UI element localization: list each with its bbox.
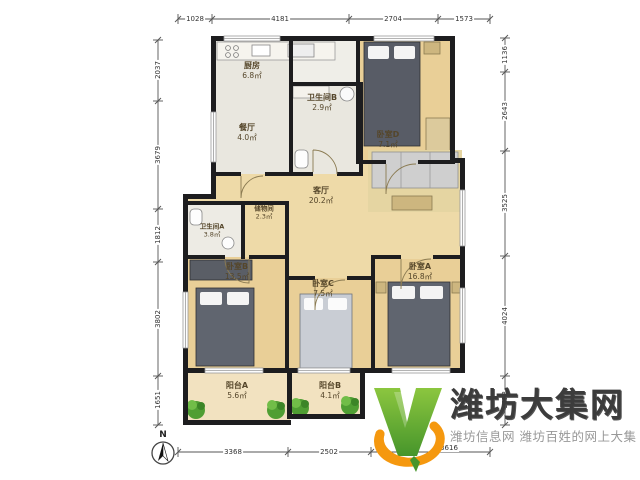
dim-right-3: 3525 [501,193,509,213]
north-compass-icon [152,442,174,464]
dim-top-4: 1573 [454,15,474,23]
room-label-bath-b: 卫生间B 2.9㎡ [307,93,337,113]
room-label-living: 客厅 20.2㎡ [309,186,333,206]
room-label-bath-a: 卫生间A 3.8㎡ [200,223,225,240]
dim-right-1: 1136 [501,45,509,65]
room-label-balcony-a: 阳台A 5.6㎡ [226,381,248,401]
coffee-table [392,196,432,210]
room-label-bedroom-c: 卧室C 7.5㎡ [312,279,334,299]
watermark-text: 潍坊大集网 潍坊信息网 潍坊百姓的网上大集 [450,384,636,445]
sofa [372,152,458,188]
dim-left-1: 2037 [154,60,162,80]
room-label-bedroom-a: 卧室A 16.8㎡ [408,262,432,282]
dim-left-5: 1651 [154,390,162,410]
dim-top-1: 1028 [185,15,205,23]
room-label-bedroom-b: 卧室B 13.5㎡ [225,262,249,282]
dim-top-3: 2704 [383,15,403,23]
watermark-title: 潍坊大集网 [450,384,636,425]
dim-right-2: 2643 [501,101,509,121]
watermark-logo: 潍坊大集网 潍坊信息网 潍坊百姓的网上大集 [364,384,636,472]
washer-icon [340,87,354,101]
brand-v-icon [364,384,448,472]
room-label-bedroom-d: 卧室D 7.1㎡ [377,130,400,150]
kitchen-sink [252,45,270,56]
room-label-dining: 餐厅 4.0㎡ [237,123,256,143]
dim-top-2: 4181 [270,15,290,23]
watermark-subtitle: 潍坊信息网 潍坊百姓的网上大集 [450,426,636,445]
dim-left-4: 3802 [154,309,162,329]
room-label-storage: 储物间 2.3㎡ [254,205,274,222]
bath-b-toilet [295,150,308,168]
room-label-kitchen: 厨房 6.8㎡ [242,61,261,81]
dim-right-4: 4024 [501,306,509,326]
room-label-balcony-b: 阳台B 4.1㎡ [319,381,341,401]
dim-left-3: 1812 [154,225,162,245]
dim-left-2: 3679 [154,145,162,165]
dim-bottom-2: 2502 [319,448,339,456]
dim-bottom-1: 3368 [223,448,243,456]
compass-north-label: N [159,430,167,440]
